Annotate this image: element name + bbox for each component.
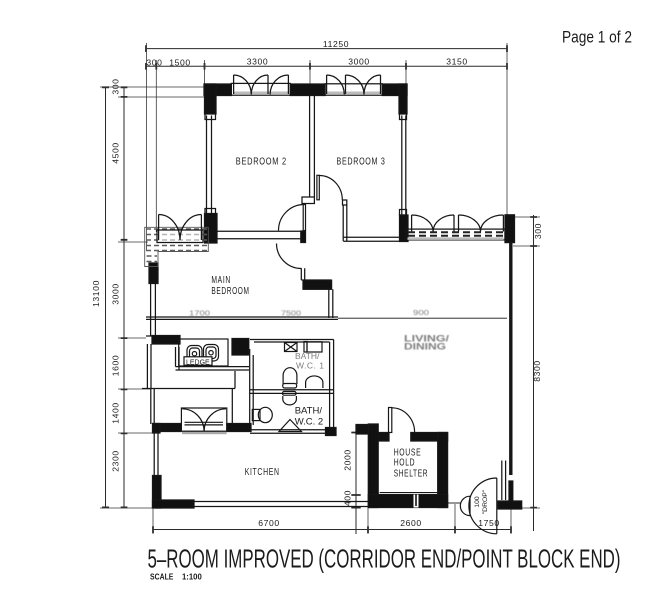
svg-text:Page 1 of 2: Page 1 of 2 bbox=[562, 29, 632, 47]
svg-text:2600: 2600 bbox=[400, 518, 422, 528]
svg-text:5–ROOM IMPROVED (CORRIDOR END/: 5–ROOM IMPROVED (CORRIDOR END/POINT BLOC… bbox=[148, 545, 621, 573]
svg-text:4500: 4500 bbox=[111, 142, 121, 164]
svg-text:400: 400 bbox=[343, 490, 353, 506]
svg-text:11250: 11250 bbox=[323, 39, 349, 49]
svg-text:BEDROOM 3: BEDROOM 3 bbox=[337, 156, 386, 168]
svg-text:3000: 3000 bbox=[111, 283, 121, 305]
svg-text:8300: 8300 bbox=[532, 360, 542, 382]
svg-text:BATH/: BATH/ bbox=[295, 406, 323, 417]
svg-text:300: 300 bbox=[146, 57, 162, 67]
svg-text:3300: 3300 bbox=[247, 57, 269, 67]
svg-text:6700: 6700 bbox=[258, 518, 280, 528]
svg-text:100: 100 bbox=[474, 496, 481, 508]
svg-text:3150: 3150 bbox=[446, 57, 468, 67]
svg-text:"DROP": "DROP" bbox=[482, 489, 489, 514]
svg-text:1700: 1700 bbox=[189, 309, 210, 318]
svg-text:1500: 1500 bbox=[169, 57, 191, 67]
svg-text:W.C. 2: W.C. 2 bbox=[295, 417, 324, 428]
svg-text:SHELTER: SHELTER bbox=[394, 468, 429, 480]
svg-text:BEDROOM 2: BEDROOM 2 bbox=[236, 156, 287, 168]
svg-text:SCALE: SCALE bbox=[150, 572, 174, 581]
svg-text:LEDGE: LEDGE bbox=[186, 360, 210, 367]
svg-text:W.C. 1: W.C. 1 bbox=[296, 361, 324, 371]
svg-text:BATH/: BATH/ bbox=[295, 351, 320, 361]
svg-text:1400: 1400 bbox=[111, 402, 121, 424]
svg-text:KITCHEN: KITCHEN bbox=[245, 466, 280, 478]
svg-text:1600: 1600 bbox=[111, 355, 121, 377]
svg-text:BEDROOM: BEDROOM bbox=[211, 285, 249, 297]
svg-text:300: 300 bbox=[111, 78, 121, 94]
svg-text:300: 300 bbox=[533, 223, 543, 239]
svg-text:3000: 3000 bbox=[348, 57, 370, 67]
svg-text:900: 900 bbox=[413, 308, 429, 317]
svg-text:7500: 7500 bbox=[281, 309, 301, 318]
svg-text:2300: 2300 bbox=[111, 450, 121, 472]
svg-text:1:100: 1:100 bbox=[182, 572, 202, 581]
svg-text:2000: 2000 bbox=[343, 449, 353, 471]
svg-text:DINING: DINING bbox=[404, 342, 446, 353]
svg-text:13100: 13100 bbox=[91, 280, 101, 307]
